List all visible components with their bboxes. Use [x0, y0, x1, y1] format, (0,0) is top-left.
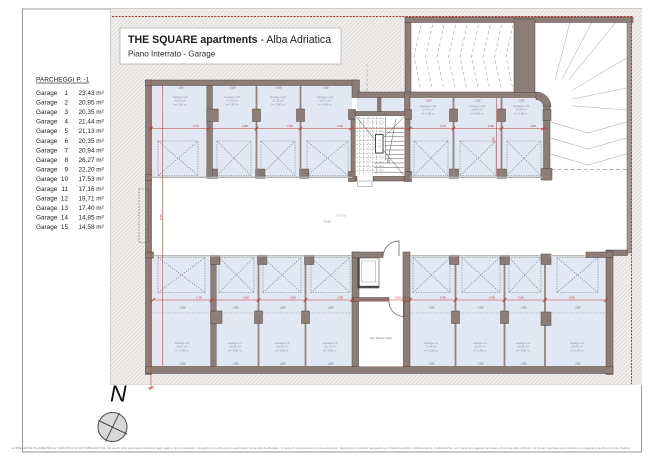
- svg-text:- 2,80: - 2,80: [574, 306, 581, 310]
- svg-text:2,60: 2,60: [489, 296, 495, 300]
- svg-text:- 2,80: - 2,80: [327, 362, 334, 366]
- svg-text:2,96: 2,96: [488, 124, 494, 128]
- svg-text:22,20 m²: 22,20 m²: [79, 167, 104, 174]
- svg-text:h= 2,80 m: h= 2,80 m: [425, 348, 439, 352]
- svg-text:Garage: Garage: [36, 205, 58, 212]
- svg-text:14: 14: [61, 215, 69, 222]
- svg-text:Piano Interrato - Garage: Piano Interrato - Garage: [128, 50, 216, 59]
- svg-text:Garage: Garage: [36, 99, 58, 106]
- svg-text:2,60: 2,60: [287, 124, 293, 128]
- svg-text:2,70: 2,70: [440, 124, 446, 128]
- svg-text:20,35 m²: 20,35 m²: [79, 109, 104, 116]
- svg-text:Corsia: Corsia: [336, 214, 346, 218]
- svg-text:21,13 m²: 21,13 m²: [79, 128, 104, 135]
- svg-text:Garage: Garage: [36, 147, 58, 154]
- svg-text:5,06: 5,06: [159, 214, 163, 220]
- svg-text:5,05: 5,05: [492, 137, 496, 143]
- svg-text:- 2,80: - 2,80: [520, 362, 527, 366]
- svg-text:Garage: Garage: [36, 138, 58, 145]
- svg-text:72,08: 72,08: [323, 220, 331, 224]
- svg-text:LA PRESENTE PLANIMETRIA E' IND: LA PRESENTE PLANIMETRIA E' INDICATIVA E …: [11, 446, 631, 450]
- svg-text:N: N: [110, 381, 127, 407]
- svg-text:15: 15: [61, 224, 69, 231]
- svg-text:h= 2,80 m: h= 2,80 m: [319, 102, 333, 106]
- svg-text:21,44 m²: 21,44 m²: [79, 119, 104, 126]
- svg-text:- 2,80: - 2,80: [425, 99, 432, 103]
- svg-text:1: 1: [64, 90, 68, 97]
- svg-text:17,16 m²: 17,16 m²: [79, 186, 104, 193]
- svg-text:h= 2,80 m: h= 2,80 m: [517, 348, 531, 352]
- svg-text:h= 2,80 m: h= 2,80 m: [474, 348, 488, 352]
- svg-text:2,70: 2,70: [193, 124, 199, 128]
- svg-text:- 2,80: - 2,80: [428, 362, 435, 366]
- svg-text:- 2,80: - 2,80: [322, 85, 329, 89]
- svg-text:- 2,80: - 2,80: [518, 99, 525, 103]
- svg-text:26,27 m²: 26,27 m²: [79, 157, 104, 164]
- svg-text:2,60: 2,60: [290, 296, 296, 300]
- svg-text:h= 2,80 m: h= 2,80 m: [515, 111, 529, 115]
- svg-text:20,95 m²: 20,95 m²: [79, 99, 104, 106]
- svg-text:h= 2,80 m: h= 2,80 m: [174, 102, 188, 106]
- svg-text:17,53 m²: 17,53 m²: [79, 176, 104, 183]
- svg-text:- 2,80: - 2,80: [275, 85, 282, 89]
- svg-text:- 2,80: - 2,80: [520, 306, 527, 310]
- svg-text:2,50: 2,50: [337, 124, 343, 128]
- svg-text:Garage: Garage: [36, 109, 58, 116]
- svg-text:12: 12: [61, 195, 69, 202]
- svg-text:4: 4: [64, 119, 68, 126]
- svg-text:- 2,80: - 2,80: [232, 362, 239, 366]
- svg-text:- 2,80: - 2,80: [477, 306, 484, 310]
- svg-text:2,80: 2,80: [242, 124, 248, 128]
- svg-text:Garage: Garage: [36, 128, 58, 135]
- svg-text:h= 2,80 m: h= 2,80 m: [471, 111, 485, 115]
- svg-text:6: 6: [64, 138, 68, 145]
- svg-text:- 2,80: - 2,80: [229, 85, 236, 89]
- svg-text:- 2,80: - 2,80: [428, 306, 435, 310]
- svg-text:Garage: Garage: [36, 186, 58, 193]
- svg-text:- 2,80: - 2,80: [177, 85, 184, 89]
- svg-text:h= 2,80 m: h= 2,80 m: [324, 348, 338, 352]
- svg-text:2,39: 2,39: [337, 296, 343, 300]
- svg-text:- 2,80: - 2,80: [474, 99, 481, 103]
- svg-text:h= 2,80 m: h= 2,80 m: [422, 111, 436, 115]
- svg-text:7: 7: [64, 147, 68, 154]
- svg-text:h= 2,80 m: h= 2,80 m: [226, 102, 240, 106]
- svg-text:10: 10: [61, 176, 69, 183]
- svg-text:- 2,80: - 2,80: [179, 306, 186, 310]
- svg-text:14,58 m²: 14,58 m²: [79, 224, 104, 231]
- svg-text:3: 3: [64, 109, 68, 116]
- svg-text:Garage: Garage: [36, 224, 58, 231]
- svg-text:20,94 m²: 20,94 m²: [79, 147, 104, 154]
- svg-text:Garage: Garage: [36, 167, 58, 174]
- svg-text:- 2,80: - 2,80: [477, 362, 484, 366]
- svg-text:h= 2,80 m: h= 2,80 m: [176, 348, 190, 352]
- svg-text:2,60: 2,60: [243, 296, 249, 300]
- svg-text:- 2,80: - 2,80: [279, 306, 286, 310]
- svg-text:THE SQUARE apartments - Alba: THE SQUARE apartments - Alba Adriatica: [128, 34, 331, 46]
- svg-text:h= 2,80 m: h= 2,80 m: [272, 102, 286, 106]
- svg-text:13: 13: [61, 205, 69, 212]
- svg-text:2,00: 2,00: [395, 296, 401, 300]
- svg-text:9: 9: [64, 167, 68, 174]
- svg-text:h= 2,80 m: h= 2,80 m: [276, 348, 290, 352]
- svg-text:23,43 m²: 23,43 m²: [79, 90, 104, 97]
- svg-text:- 2,80: - 2,80: [232, 306, 239, 310]
- svg-text:h= 2,80 m: h= 2,80 m: [571, 348, 585, 352]
- svg-text:2,96: 2,96: [518, 296, 524, 300]
- svg-text:8: 8: [64, 157, 68, 164]
- svg-text:Loc. Tecnico Cond.: Loc. Tecnico Cond.: [370, 336, 392, 340]
- svg-text:- 2,80: - 2,80: [574, 362, 581, 366]
- svg-text:Garage: Garage: [36, 90, 58, 97]
- svg-text:h= 2,80 m: h= 2,80 m: [229, 348, 243, 352]
- svg-text:17,40 m²: 17,40 m²: [79, 205, 104, 212]
- svg-text:20,35 m²: 20,35 m²: [79, 138, 104, 145]
- svg-text:2: 2: [64, 99, 68, 106]
- svg-text:5,06: 5,06: [569, 296, 575, 300]
- svg-text:19,71 m²: 19,71 m²: [79, 195, 104, 202]
- svg-text:PARCHEGGI P. -1: PARCHEGGI P. -1: [36, 77, 90, 84]
- svg-text:- 2,80: - 2,80: [179, 362, 186, 366]
- svg-text:Garage: Garage: [36, 215, 58, 222]
- svg-text:14,85 m²: 14,85 m²: [79, 215, 104, 222]
- svg-text:- 2,80: - 2,80: [279, 362, 286, 366]
- svg-text:11: 11: [61, 186, 68, 193]
- svg-text:2,70: 2,70: [196, 296, 202, 300]
- svg-text:2,60: 2,60: [530, 124, 536, 128]
- svg-text:Garage: Garage: [36, 176, 58, 183]
- svg-text:2,45: 2,45: [440, 296, 446, 300]
- svg-text:Garage: Garage: [36, 119, 58, 126]
- svg-text:Garage: Garage: [36, 195, 58, 202]
- svg-text:5: 5: [64, 128, 68, 135]
- svg-text:Garage: Garage: [36, 157, 58, 164]
- svg-text:- 2,80: - 2,80: [327, 306, 334, 310]
